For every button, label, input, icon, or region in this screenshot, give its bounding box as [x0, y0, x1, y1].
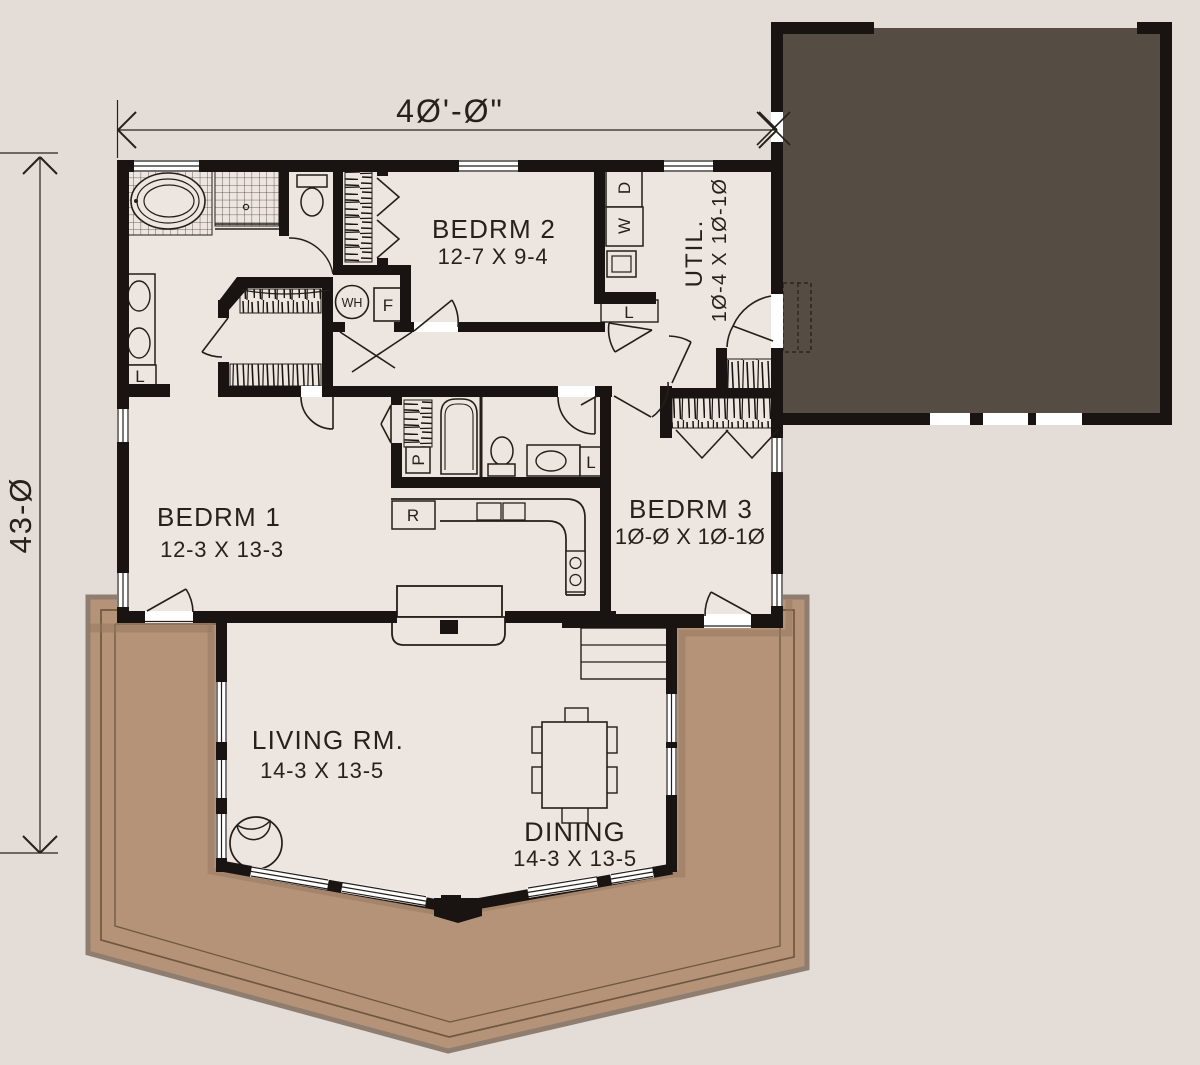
svg-text:14-3 X 13-5: 14-3 X 13-5 — [513, 846, 637, 871]
svg-text:14-3 X 13-5: 14-3 X 13-5 — [260, 758, 384, 783]
svg-text:BEDRM 2: BEDRM 2 — [432, 214, 556, 244]
svg-text:WH: WH — [342, 296, 363, 310]
svg-text:L: L — [135, 367, 144, 386]
svg-text:4Ø'-Ø": 4Ø'-Ø" — [396, 93, 504, 129]
svg-text:L: L — [624, 303, 633, 322]
svg-text:BEDRM 1: BEDRM 1 — [157, 502, 281, 532]
svg-text:1Ø-4 X 1Ø-1Ø: 1Ø-4 X 1Ø-1Ø — [709, 178, 731, 323]
svg-text:12-7 X 9-4: 12-7 X 9-4 — [438, 244, 549, 269]
svg-text:F: F — [383, 296, 393, 315]
svg-text:UTIL.: UTIL. — [681, 219, 708, 288]
svg-text:43-Ø: 43-Ø — [3, 477, 38, 554]
svg-text:LIVING RM.: LIVING RM. — [252, 725, 404, 755]
svg-text:1Ø-Ø X 1Ø-1Ø: 1Ø-Ø X 1Ø-1Ø — [615, 524, 765, 549]
svg-text:DINING: DINING — [524, 817, 626, 847]
svg-text:BEDRM 3: BEDRM 3 — [629, 494, 753, 524]
svg-text:D: D — [615, 182, 634, 194]
svg-text:R: R — [407, 506, 419, 525]
svg-text:12-3 X 13-3: 12-3 X 13-3 — [160, 537, 284, 562]
svg-text:W: W — [615, 218, 634, 234]
svg-text:P: P — [409, 454, 428, 465]
svg-text:L: L — [586, 453, 595, 472]
